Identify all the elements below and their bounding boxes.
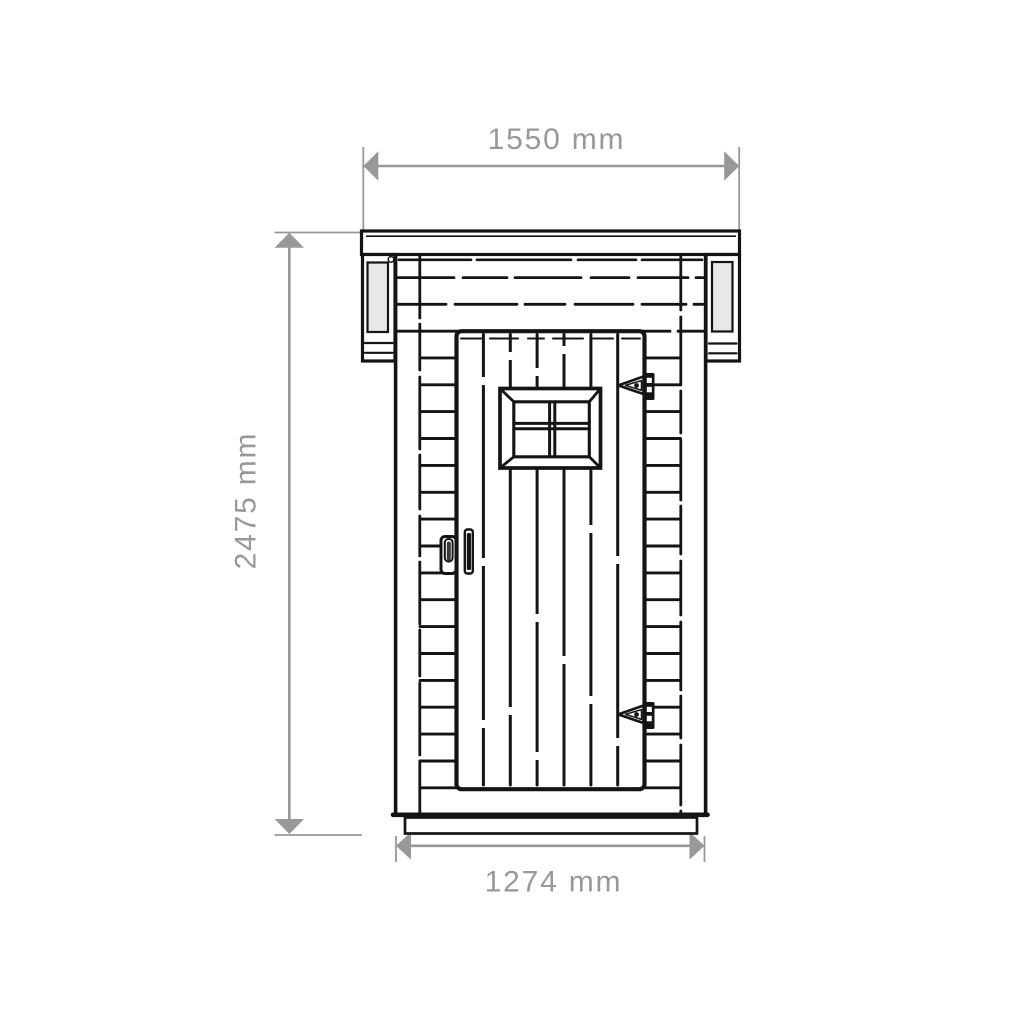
svg-text:2475 mm: 2475 mm [230,432,263,570]
svg-text:1550 mm: 1550 mm [488,123,626,156]
svg-text:1274 mm: 1274 mm [485,866,623,899]
